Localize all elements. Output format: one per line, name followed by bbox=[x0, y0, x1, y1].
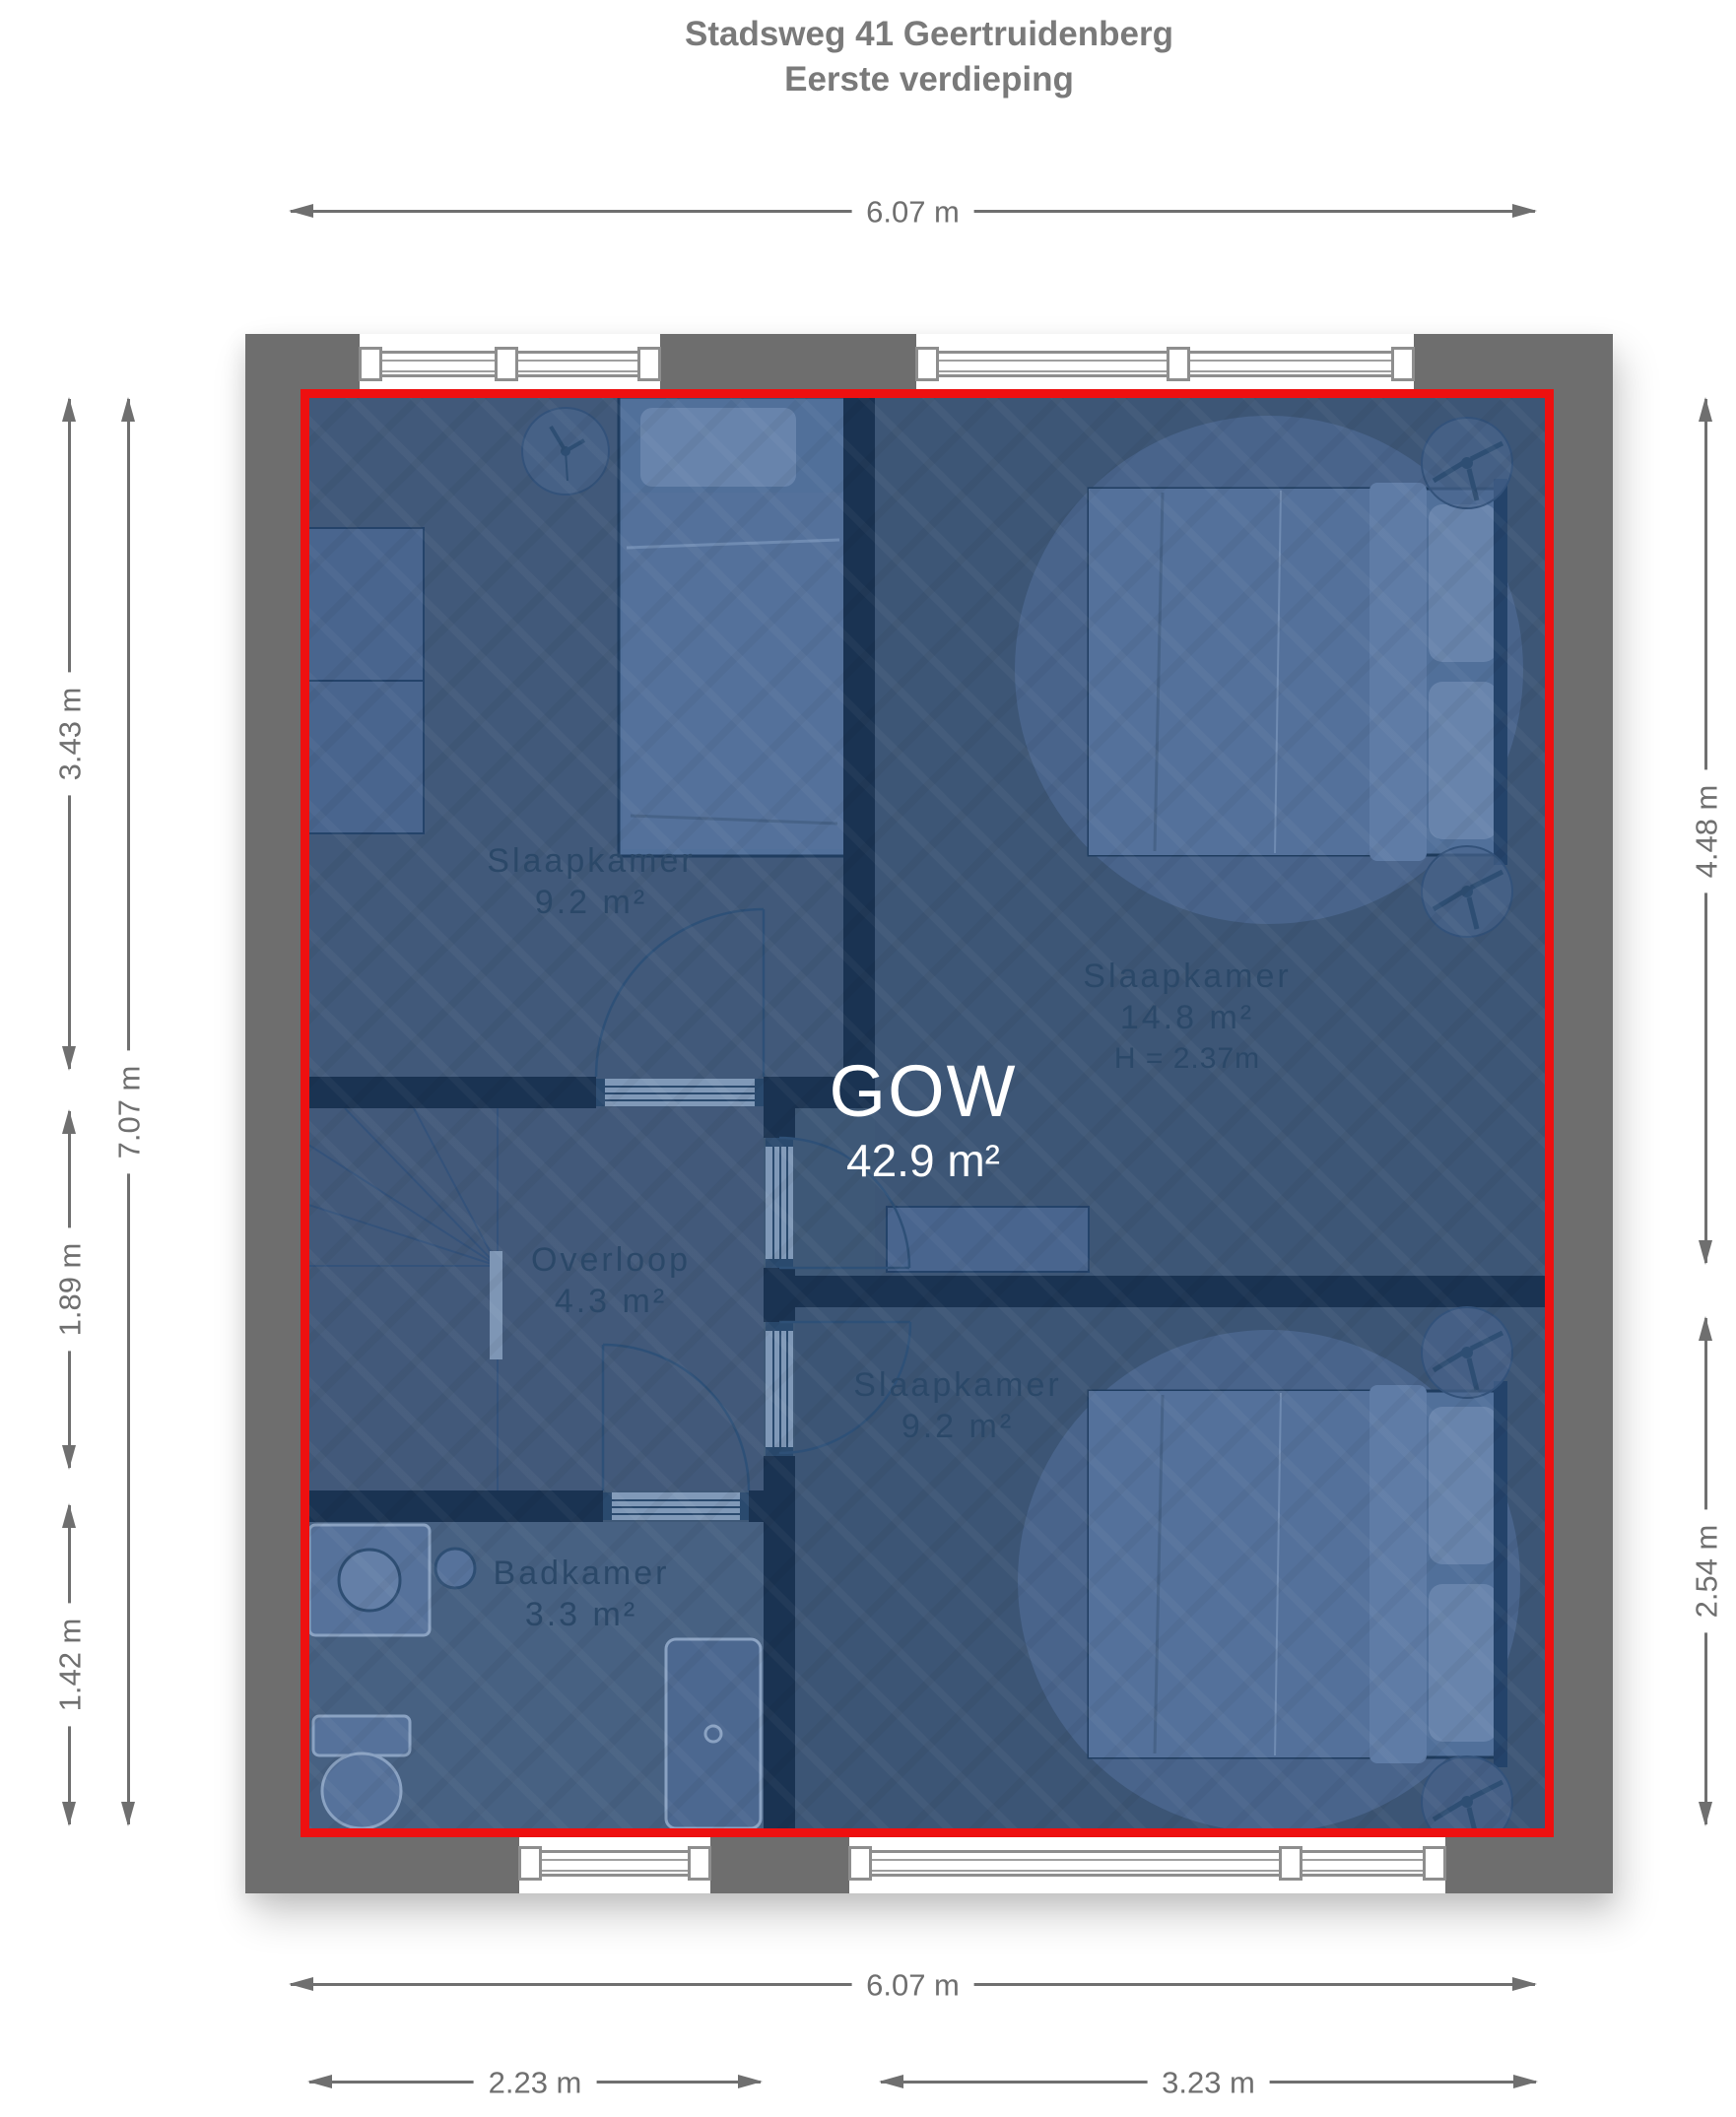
exterior-wall-right bbox=[1553, 334, 1613, 1893]
dimension-right-bottom: 2.54 m bbox=[1704, 1318, 1707, 1824]
dimension-bottom-width: 6.07 m bbox=[291, 1983, 1535, 1986]
window-icon bbox=[916, 334, 1414, 394]
arrow-right-icon bbox=[1512, 1977, 1537, 1991]
arrow-up-icon bbox=[62, 1109, 76, 1134]
arrow-left-icon bbox=[289, 204, 313, 218]
arrow-right-icon bbox=[1512, 204, 1537, 218]
dimension-label: 1.42 m bbox=[51, 1604, 88, 1727]
window-glass bbox=[519, 1850, 710, 1877]
dimension-label: 2.23 m bbox=[474, 2064, 597, 2100]
dimension-label: 3.43 m bbox=[51, 673, 88, 796]
arrow-up-icon bbox=[62, 397, 76, 422]
window-frame-mullion bbox=[495, 347, 518, 381]
window-frame-end bbox=[359, 347, 382, 381]
window-frame-mullion bbox=[1167, 347, 1190, 381]
arrow-up-icon bbox=[121, 397, 135, 422]
title-floor: Eerste verdieping bbox=[245, 57, 1613, 102]
arrow-down-icon bbox=[1699, 1240, 1712, 1265]
arrow-up-icon bbox=[1699, 1316, 1712, 1341]
title-address: Stadsweg 41 Geertruidenberg bbox=[245, 12, 1613, 57]
dimension-left-total: 7.07 m bbox=[127, 399, 130, 1824]
dimension-top-width: 6.07 m bbox=[291, 210, 1535, 213]
floorplan-page: Stadsweg 41 Geertruidenberg Eerste verdi… bbox=[0, 0, 1736, 2117]
window-frame-end bbox=[848, 1846, 872, 1881]
window-frame-end bbox=[915, 347, 939, 381]
dimension-label: 7.07 m bbox=[110, 1050, 147, 1173]
window-frame-end bbox=[1423, 1846, 1446, 1881]
dimension-label: 1.89 m bbox=[51, 1228, 88, 1352]
arrow-up-icon bbox=[62, 1503, 76, 1528]
page-title: Stadsweg 41 Geertruidenberg Eerste verdi… bbox=[245, 12, 1613, 102]
arrow-right-icon bbox=[1513, 2075, 1538, 2088]
window-icon bbox=[849, 1833, 1445, 1893]
dimension-label: 3.23 m bbox=[1147, 2064, 1270, 2100]
dimension-bottom-segment-left: 2.23 m bbox=[309, 2081, 761, 2084]
arrow-up-icon bbox=[1699, 397, 1712, 422]
dimension-label: 4.48 m bbox=[1688, 769, 1724, 893]
window-frame-end bbox=[688, 1846, 711, 1881]
dimension-bottom-segment-right: 3.23 m bbox=[881, 2081, 1536, 2084]
window-frame-end bbox=[637, 347, 661, 381]
arrow-right-icon bbox=[738, 2075, 763, 2088]
arrow-down-icon bbox=[62, 1445, 76, 1470]
exterior-wall-left bbox=[245, 334, 305, 1893]
arrow-left-icon bbox=[289, 1977, 313, 1991]
arrow-down-icon bbox=[62, 1802, 76, 1826]
arrow-down-icon bbox=[62, 1046, 76, 1071]
dimension-left-bottom: 1.42 m bbox=[68, 1505, 71, 1824]
gow-outline bbox=[300, 389, 1554, 1837]
arrow-left-icon bbox=[879, 2075, 903, 2088]
exterior-wall-top bbox=[245, 334, 1613, 394]
dimension-label: 6.07 m bbox=[851, 193, 974, 230]
window-frame-mullion bbox=[1279, 1846, 1302, 1881]
window-icon bbox=[360, 334, 660, 394]
arrow-down-icon bbox=[121, 1802, 135, 1826]
dimension-left-top: 3.43 m bbox=[68, 399, 71, 1069]
window-glass bbox=[916, 351, 1414, 377]
dimension-label: 6.07 m bbox=[851, 1966, 974, 2003]
arrow-down-icon bbox=[1699, 1802, 1712, 1826]
window-frame-end bbox=[518, 1846, 542, 1881]
dimension-label: 2.54 m bbox=[1688, 1510, 1724, 1633]
window-icon bbox=[519, 1833, 710, 1893]
window-frame-end bbox=[1391, 347, 1415, 381]
dimension-right-top: 4.48 m bbox=[1704, 399, 1707, 1263]
arrow-left-icon bbox=[307, 2075, 332, 2088]
dimension-left-middle: 1.89 m bbox=[68, 1111, 71, 1468]
window-glass bbox=[849, 1850, 1445, 1877]
exterior-wall-bottom bbox=[245, 1833, 1613, 1893]
